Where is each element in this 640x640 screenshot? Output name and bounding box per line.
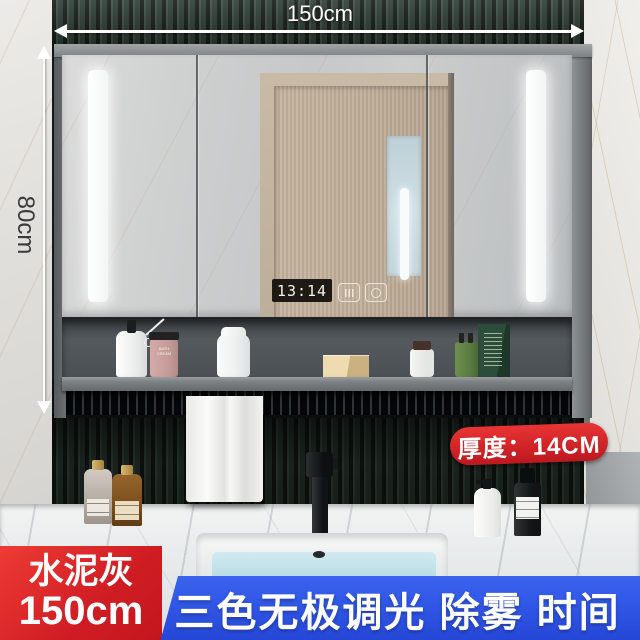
door-seam-right xyxy=(426,55,428,317)
small-jar xyxy=(410,349,434,377)
gold-cap xyxy=(92,460,104,470)
towel-rail-recess xyxy=(66,391,572,418)
bottle-label xyxy=(516,497,539,519)
led-strip-left xyxy=(88,70,108,302)
white-pump-bottle xyxy=(116,331,147,377)
amber-counter-bottle xyxy=(112,474,142,526)
tan-box xyxy=(323,355,369,377)
mirror-cabinet-doors: 13:14 xyxy=(62,55,572,317)
hanging-towel xyxy=(186,396,263,502)
arrow-line xyxy=(43,54,46,406)
thickness-badge: 厚度：14CM xyxy=(449,422,608,465)
reflected-light-bar xyxy=(400,188,409,280)
defog-touch-button xyxy=(338,283,360,302)
jar-lid xyxy=(221,327,246,336)
pump-head xyxy=(483,479,491,489)
door-seam-left xyxy=(196,55,198,317)
sink-overflow-hole xyxy=(313,551,325,558)
features-banner: 三色无极调光 除雾 时间 xyxy=(150,576,640,640)
led-strip-right xyxy=(526,70,546,302)
arrowhead-left-icon xyxy=(54,24,67,38)
box-text-lines xyxy=(484,333,502,369)
gold-cap xyxy=(121,465,133,475)
size-label: 150cm xyxy=(19,590,144,633)
white-counter-pump-bottle xyxy=(474,488,501,537)
bottle-cap xyxy=(520,468,535,483)
reflected-frosted-glass xyxy=(387,136,421,276)
bottle-label xyxy=(87,499,109,516)
bottle-label xyxy=(115,501,139,520)
height-dimension-label: 80cm xyxy=(13,189,39,261)
green-pump-bottle xyxy=(455,342,478,377)
arrowhead-top-icon xyxy=(37,46,51,59)
green-product-box xyxy=(478,324,510,377)
open-shelf: BATH CREAM xyxy=(62,317,572,391)
color-name-label: 水泥灰 xyxy=(28,553,133,591)
color-size-box: 水泥灰 150cm xyxy=(0,546,162,640)
faucet-spout xyxy=(306,452,333,477)
faucet-body xyxy=(312,474,328,542)
product-image-bathroom-mirror-cabinet: 13:14 BATH CREAM xyxy=(0,0,640,640)
cream-jar-pink: BATH CREAM xyxy=(150,339,178,377)
cabinet-right-frame xyxy=(572,44,592,418)
white-jar xyxy=(217,334,250,377)
arrow-line xyxy=(62,30,576,33)
shelf-board xyxy=(62,377,572,391)
gray-counter-bottle xyxy=(84,469,112,524)
clock-display: 13:14 xyxy=(272,279,332,302)
arrowhead-right-icon xyxy=(571,24,584,38)
defog-icon xyxy=(345,289,354,297)
pump-head xyxy=(127,320,136,333)
arrowhead-bottom-icon xyxy=(37,401,51,414)
jar-lid xyxy=(149,332,179,340)
jar-lid xyxy=(413,341,431,350)
black-counter-bottle xyxy=(514,482,541,536)
jar-label: BATH CREAM xyxy=(153,346,175,372)
pump-nozzle xyxy=(459,333,464,343)
pump-nozzle xyxy=(468,333,473,343)
power-icon xyxy=(371,288,381,298)
light-power-touch-button xyxy=(365,283,387,302)
reflected-door-edge xyxy=(448,73,454,317)
width-arrow xyxy=(54,23,584,39)
